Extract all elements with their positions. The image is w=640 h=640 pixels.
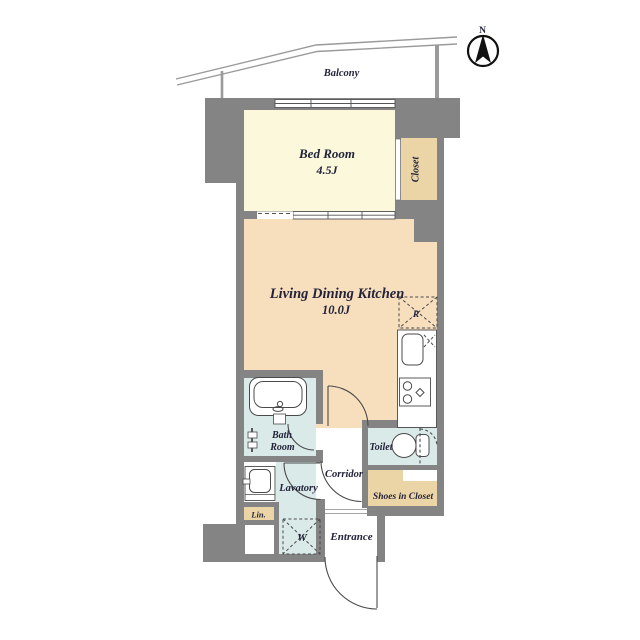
linen-label: Lin. [250,510,265,520]
shoes-in-closet-label: Shoes in Closet [373,492,434,502]
corridor-entrance-door-arc [321,461,362,502]
bedroom-floor [241,108,397,214]
wall-segment [236,108,244,526]
bedroom-label: Bed Room [298,146,355,161]
door-swing-arc [325,557,377,609]
shower-knob [248,432,257,438]
wall-segment [395,200,444,212]
shower-knob [248,442,257,448]
bathtub-step [274,414,286,424]
bath-room-label-line1: Bath [271,430,292,441]
toilet-label: Toilet [370,442,394,453]
toilet-bowl [392,434,416,458]
wall-segment [236,370,323,378]
lavatory-label: Lavatory [278,483,318,494]
wall-segment [236,520,278,525]
floor-plan: N Balcony Bed Room 4.5J Closet Living Di… [0,0,640,640]
wall-segment [437,134,444,516]
balcony-label: Balcony [323,68,360,79]
wall-segment [316,450,323,463]
ldk-dashed-opening [257,212,293,220]
ldk-label: Living Dining Kitchen [269,286,405,302]
closet-label: Closet [411,156,422,183]
entrance-door [325,554,377,609]
toilet-tank [416,435,429,457]
washbasin-tap [243,479,250,484]
wall-segment [377,510,385,562]
entrance-label: Entrance [329,531,372,543]
wall-segment [396,98,460,138]
compass-label: N [479,26,486,36]
wall-segment [367,506,444,516]
closet-door [396,139,401,200]
washer-label: W [297,532,308,544]
floor-plan-page: N Balcony Bed Room 4.5J Closet Living Di… [0,0,640,640]
ldk-size-label: 10.0J [322,303,351,317]
wall-segment [362,465,444,470]
wall-segment [316,370,323,424]
wall-segment [236,456,323,462]
balcony-railing [176,37,457,100]
lavatory-floor [276,462,316,554]
north-compass [468,35,498,67]
corridor-label: Corridor [325,469,364,480]
wall-segment [362,420,368,508]
bedroom-size-label: 4.5J [316,163,339,177]
wall-segment [274,502,279,554]
refrigerator-label: R [412,310,419,320]
entrance-opening [325,554,377,562]
balcony-rail-outer [176,37,457,79]
bath-room-label-line2: Room [269,442,295,453]
wall-segment [236,502,278,507]
wall-segment [205,98,241,183]
balcony-rail-inner [177,44,457,85]
